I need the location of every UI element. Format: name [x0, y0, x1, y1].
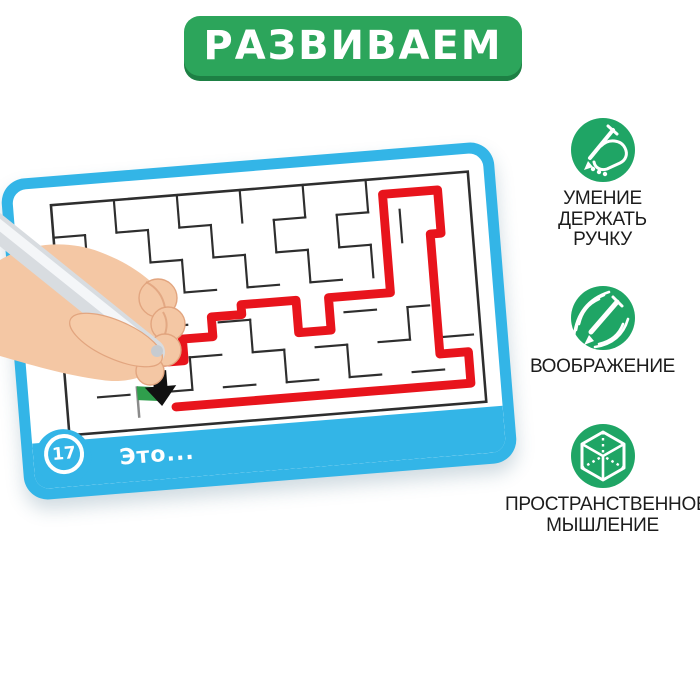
card-caption: Это... [118, 431, 197, 483]
feature-pen-skill: УМЕНИЕ ДЕРЖАТЬ РУЧКУ [505, 118, 700, 251]
product-image: { "banner": { "label": "РАЗВИВАЕМ" }, "c… [0, 0, 700, 700]
feature-imagination: ВООБРАЖЕНИЕ [505, 286, 700, 378]
imagination-pencil-icon [571, 286, 635, 350]
spatial-thinking-cube-icon [571, 424, 635, 488]
pen-tip [151, 345, 163, 357]
banner: РАЗВИВАЕМ [184, 16, 522, 76]
child-hand-with-pen [0, 212, 225, 412]
banner-label: РАЗВИВАЕМ [203, 23, 502, 69]
feature-label: ПРОСТРАНСТВЕННОЕ МЫШЛЕНИЕ [505, 495, 700, 536]
hand-holding-pen-icon [571, 118, 635, 182]
feature-spatial-thinking: ПРОСТРАНСТВЕННОЕ МЫШЛЕНИЕ [505, 424, 700, 536]
feature-label: ВООБРАЖЕНИЕ [505, 357, 700, 378]
feature-label: УМЕНИЕ ДЕРЖАТЬ РУЧКУ [505, 189, 700, 251]
